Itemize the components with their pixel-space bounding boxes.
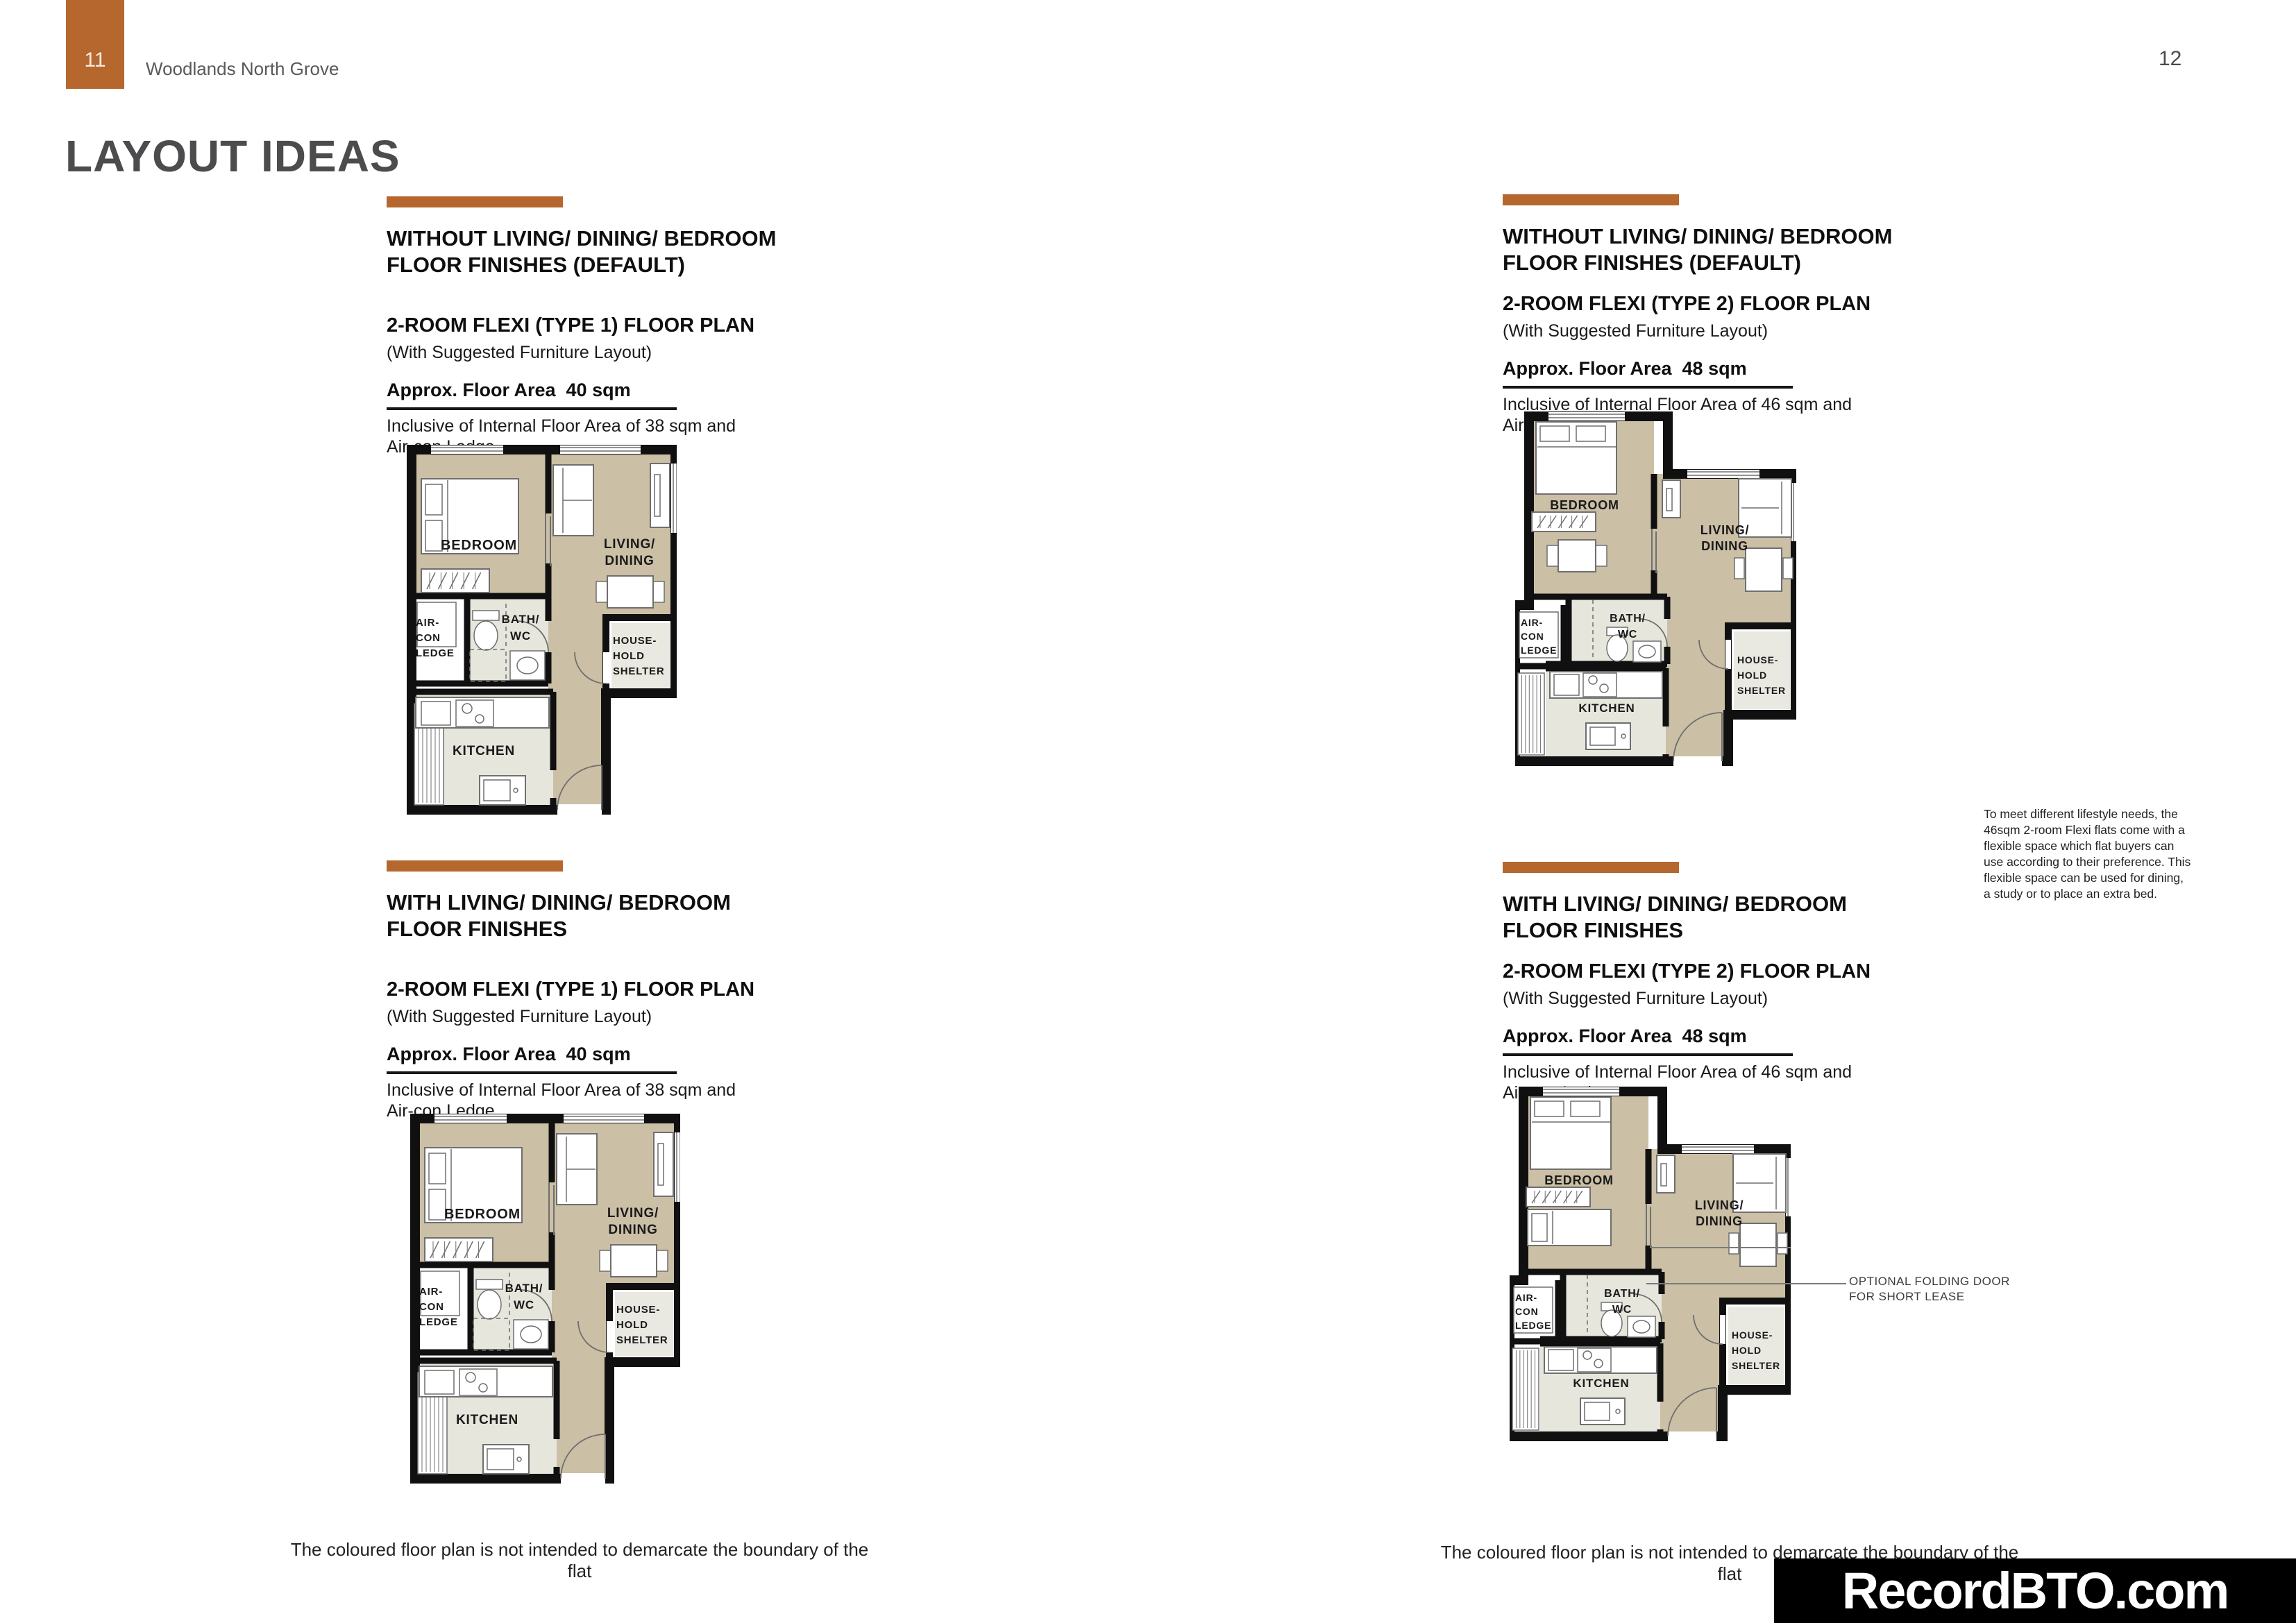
area-note-line1: Inclusive of Internal Floor Area of 38 s… [387, 416, 736, 436]
section-type2-default: WITHOUT LIVING/ DINING/ BEDROOM FLOOR FI… [1503, 194, 1961, 436]
svg-text:BEDROOM: BEDROOM [441, 538, 517, 553]
heading-line1: WITHOUT LIVING/ DINING/ BEDROOM [1503, 224, 1892, 248]
heading-line1: WITHOUT LIVING/ DINING/ BEDROOM [387, 226, 776, 250]
svg-text:AIR-: AIR- [1521, 617, 1543, 628]
svg-text:HOLD: HOLD [613, 650, 645, 662]
floor-plan-type2-finishes: BEDROOMLIVING/DININGAIR-CONLEDGEBATH/WCK… [1510, 1086, 1791, 1447]
svg-text:DINING: DINING [608, 1223, 657, 1237]
accent-bar [1503, 862, 1679, 873]
svg-text:BEDROOM: BEDROOM [1550, 498, 1619, 512]
floor-plan-type1-default: BEDROOMLIVING/DININGAIR-CONLEDGEBATH/WCK… [406, 444, 677, 815]
svg-text:LEDGE: LEDGE [1521, 645, 1557, 656]
svg-text:HOUSE-: HOUSE- [613, 635, 657, 647]
svg-text:KITCHEN: KITCHEN [1578, 702, 1635, 715]
svg-text:LIVING/: LIVING/ [1700, 523, 1750, 537]
svg-text:SHELTER: SHELTER [613, 665, 665, 677]
svg-text:KITCHEN: KITCHEN [453, 744, 515, 758]
svg-text:WC: WC [510, 629, 531, 643]
floor-plan-type2-default: BEDROOMLIVING/DININGAIR-CONLEDGEBATH/WCK… [1515, 411, 1796, 772]
svg-text:DINING: DINING [605, 554, 654, 568]
svg-text:DINING: DINING [1701, 539, 1748, 553]
plan-title: 2-ROOM FLEXI (TYPE 1) FLOOR PLAN [387, 978, 845, 1001]
accent-bar [1503, 194, 1679, 205]
leader-line [1646, 1283, 1846, 1284]
svg-text:CON: CON [1521, 631, 1544, 642]
area-note-line1: Inclusive of Internal Floor Area of 38 s… [387, 1080, 736, 1100]
svg-text:CON: CON [1515, 1306, 1539, 1317]
svg-text:HOLD: HOLD [1737, 670, 1767, 681]
svg-text:BATH/: BATH/ [1604, 1288, 1640, 1300]
section-type2-finishes: WITH LIVING/ DINING/ BEDROOM FLOOR FINIS… [1503, 862, 1961, 1103]
svg-text:WC: WC [1612, 1304, 1632, 1316]
svg-text:BEDROOM: BEDROOM [1544, 1173, 1614, 1187]
section-heading: WITH LIVING/ DINING/ BEDROOM FLOOR FINIS… [1503, 891, 1961, 944]
floor-area-label: Approx. Floor Area 40 sqm [387, 1044, 677, 1074]
floor-plan-type1-finishes: BEDROOMLIVING/DININGAIR-CONLEDGEBATH/WCK… [410, 1113, 680, 1484]
watermark-banner: RecordBTO.com [1774, 1558, 2296, 1623]
svg-text:CON: CON [419, 1301, 444, 1313]
page-number-tab: 11 [66, 0, 124, 89]
svg-text:LEDGE: LEDGE [416, 647, 455, 659]
svg-text:LEDGE: LEDGE [419, 1316, 458, 1328]
svg-text:BEDROOM: BEDROOM [444, 1207, 521, 1222]
plan-subtitle: (With Suggested Furniture Layout) [387, 343, 845, 363]
floor-area-label: Approx. Floor Area 40 sqm [387, 380, 677, 410]
brochure-page: 11 Woodlands North Grove 12 LAYOUT IDEAS… [0, 0, 2296, 1623]
accent-bar [387, 860, 563, 872]
annotation-line2: FOR SHORT LEASE [1849, 1290, 1965, 1303]
svg-text:HOUSE-: HOUSE- [616, 1304, 660, 1316]
heading-line2: FLOOR FINISHES [387, 917, 567, 941]
section-heading: WITHOUT LIVING/ DINING/ BEDROOM FLOOR FI… [387, 226, 845, 278]
page-number-right: 12 [2159, 47, 2181, 71]
svg-text:WC: WC [1618, 629, 1637, 640]
folding-door-annotation: OPTIONAL FOLDING DOOR FOR SHORT LEASE [1849, 1274, 2010, 1305]
annotation-line1: OPTIONAL FOLDING DOOR [1849, 1275, 2010, 1288]
svg-text:CON: CON [416, 632, 441, 644]
svg-text:HOLD: HOLD [1732, 1345, 1762, 1356]
project-name: Woodlands North Grove [146, 58, 339, 80]
svg-text:BATH/: BATH/ [1610, 613, 1646, 624]
svg-text:LEDGE: LEDGE [1515, 1320, 1551, 1331]
svg-text:HOUSE-: HOUSE- [1732, 1329, 1773, 1341]
plan-title: 2-ROOM FLEXI (TYPE 2) FLOOR PLAN [1503, 960, 1961, 983]
floor-area-label: Approx. Floor Area 48 sqm [1503, 358, 1793, 389]
heading-line2: FLOOR FINISHES [1503, 918, 1683, 942]
plan-subtitle: (With Suggested Furniture Layout) [387, 1007, 845, 1027]
heading-line1: WITH LIVING/ DINING/ BEDROOM [387, 890, 731, 915]
footer-note-left: The coloured floor plan is not intended … [281, 1539, 878, 1582]
svg-text:LIVING/: LIVING/ [1695, 1198, 1744, 1212]
watermark-text: RecordBTO.com [1842, 1561, 2229, 1620]
plan-title: 2-ROOM FLEXI (TYPE 2) FLOOR PLAN [1503, 293, 1961, 316]
svg-text:BATH/: BATH/ [505, 1282, 543, 1295]
section-type1-finishes: WITH LIVING/ DINING/ BEDROOM FLOOR FINIS… [387, 860, 845, 1121]
svg-text:HOUSE-: HOUSE- [1737, 654, 1778, 665]
svg-text:LIVING/: LIVING/ [607, 1206, 659, 1221]
svg-text:HOLD: HOLD [616, 1319, 648, 1331]
accent-bar [387, 196, 563, 207]
svg-text:BATH/: BATH/ [502, 613, 540, 626]
svg-text:LIVING/: LIVING/ [604, 537, 655, 552]
section-heading: WITHOUT LIVING/ DINING/ BEDROOM FLOOR FI… [1503, 223, 1961, 276]
plan-subtitle: (With Suggested Furniture Layout) [1503, 321, 1961, 341]
svg-text:AIR-: AIR- [416, 617, 439, 629]
page-number-left: 11 [66, 49, 124, 72]
plan-title: 2-ROOM FLEXI (TYPE 1) FLOOR PLAN [387, 314, 845, 337]
heading-line1: WITH LIVING/ DINING/ BEDROOM [1503, 892, 1847, 916]
plan-subtitle: (With Suggested Furniture Layout) [1503, 989, 1961, 1009]
svg-text:AIR-: AIR- [419, 1286, 443, 1298]
heading-line2: FLOOR FINISHES (DEFAULT) [387, 253, 685, 277]
svg-text:SHELTER: SHELTER [616, 1334, 668, 1346]
section-type1-default: WITHOUT LIVING/ DINING/ BEDROOM FLOOR FI… [387, 196, 845, 457]
svg-text:DINING: DINING [1696, 1214, 1743, 1228]
svg-text:WC: WC [514, 1298, 534, 1311]
heading-line2: FLOOR FINISHES (DEFAULT) [1503, 250, 1801, 275]
floor-area-label: Approx. Floor Area 48 sqm [1503, 1026, 1793, 1056]
svg-text:KITCHEN: KITCHEN [456, 1413, 518, 1427]
svg-text:SHELTER: SHELTER [1732, 1360, 1780, 1371]
area-note-line1: Inclusive of Internal Floor Area of 46 s… [1503, 1062, 1852, 1082]
page-title: LAYOUT IDEAS [65, 130, 400, 182]
svg-text:KITCHEN: KITCHEN [1573, 1377, 1629, 1390]
svg-text:SHELTER: SHELTER [1737, 685, 1786, 696]
flexi-space-note: To meet different lifestyle needs, the 4… [1984, 806, 2192, 902]
svg-text:AIR-: AIR- [1515, 1292, 1537, 1303]
section-heading: WITH LIVING/ DINING/ BEDROOM FLOOR FINIS… [387, 890, 845, 942]
